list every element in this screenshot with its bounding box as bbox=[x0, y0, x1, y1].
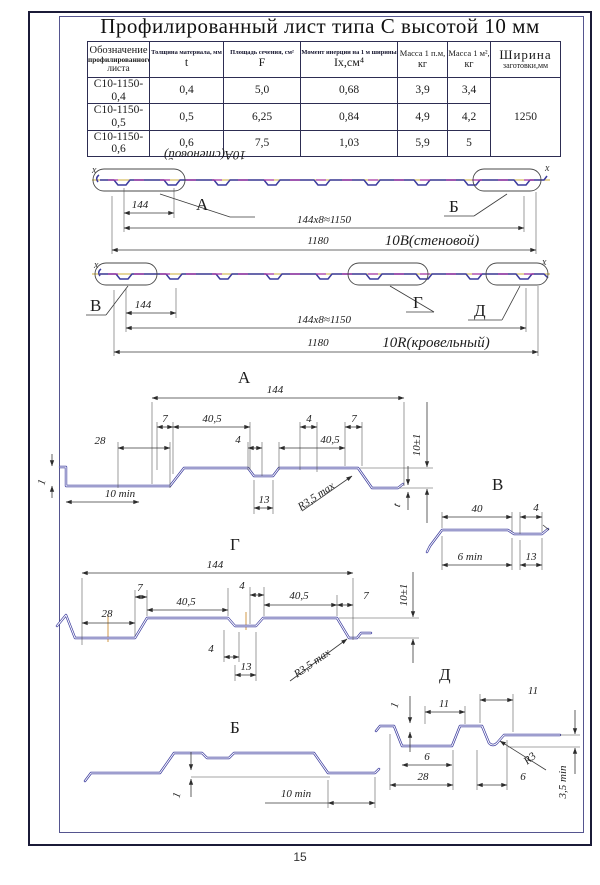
svg-text:3,5 min: 3,5 min bbox=[557, 765, 569, 800]
leader-d bbox=[502, 286, 520, 320]
cell-inertia: 0,68 bbox=[301, 78, 398, 104]
header-area: Площадь сечения, см² F bbox=[224, 42, 301, 78]
svg-text:7: 7 bbox=[363, 590, 369, 602]
table-row: С10-1150-0,4 0,4 5,0 0,68 3,9 3,4 1250 bbox=[88, 78, 561, 104]
svg-text:6: 6 bbox=[520, 771, 526, 783]
svg-text:7: 7 bbox=[351, 413, 357, 425]
svg-text:4: 4 bbox=[239, 580, 245, 592]
detail-b-label: Б bbox=[230, 718, 240, 737]
leader-g bbox=[390, 286, 434, 312]
header-mass-lm: Масса 1 п.м, кг bbox=[398, 42, 448, 78]
svg-text:40,5: 40,5 bbox=[202, 413, 222, 425]
svg-text:40: 40 bbox=[472, 503, 484, 515]
svg-text:4: 4 bbox=[208, 643, 214, 655]
svg-text:1180: 1180 bbox=[307, 337, 329, 349]
page-title: Профилированный лист типа С высотой 10 м… bbox=[62, 14, 578, 39]
cell-inertia: 0,84 bbox=[301, 104, 398, 130]
flipped-type-label: 10А(стеновой) bbox=[164, 148, 246, 163]
cell-designation: С10-1150-0,5 bbox=[88, 104, 150, 130]
svg-text:R3,5 max: R3,5 max bbox=[295, 480, 337, 514]
svg-text:4: 4 bbox=[235, 434, 241, 446]
cell-mass-lm: 3,9 bbox=[398, 78, 448, 104]
header-thickness: Толщина материала, мм t bbox=[150, 42, 224, 78]
svg-text:40,5: 40,5 bbox=[176, 596, 196, 608]
svg-text:40,5: 40,5 bbox=[289, 590, 309, 602]
svg-text:144: 144 bbox=[267, 384, 284, 396]
detail-d-drawing: Д 1 11 11 6 28 6 R3 bbox=[376, 665, 580, 800]
svg-text:13: 13 bbox=[241, 661, 253, 673]
type-label-roof: 10R(кровельный) bbox=[382, 335, 489, 351]
detail-d-profile bbox=[376, 726, 560, 746]
svg-text:28: 28 bbox=[418, 771, 430, 783]
detail-a-profile bbox=[60, 467, 403, 488]
svg-text:1: 1 bbox=[36, 478, 49, 486]
cell-thickness: 0,5 bbox=[150, 104, 224, 130]
svg-text:t: t bbox=[391, 501, 404, 508]
svg-text:R3,5 max: R3,5 max bbox=[291, 647, 333, 681]
detail-v-profile bbox=[427, 529, 548, 552]
svg-text:40,5: 40,5 bbox=[320, 434, 340, 446]
svg-text:10 min: 10 min bbox=[105, 488, 136, 500]
svg-text:144х8≈1150: 144х8≈1150 bbox=[297, 314, 352, 326]
svg-text:6: 6 bbox=[424, 751, 430, 763]
header-mass-m2: Масса 1 м², кг bbox=[448, 42, 491, 78]
cell-mass-lm: 4,9 bbox=[398, 104, 448, 130]
svg-text:R3: R3 bbox=[521, 750, 539, 768]
svg-text:7: 7 bbox=[137, 582, 143, 594]
svg-text:1: 1 bbox=[389, 701, 402, 709]
svg-text:11: 11 bbox=[439, 698, 449, 710]
svg-text:144: 144 bbox=[135, 299, 152, 311]
svg-text:4: 4 bbox=[533, 502, 539, 514]
detail-a-drawing: А 144 7 40,5 4 7 bbox=[36, 368, 433, 523]
cell-thickness: 0,4 bbox=[150, 78, 224, 104]
document-page: Профилированный лист типа С высотой 10 м… bbox=[0, 0, 600, 885]
svg-text:10 min: 10 min bbox=[281, 788, 312, 800]
detail-d-label: Д bbox=[439, 665, 451, 684]
table-row: С10-1150-0,5 0,5 6,25 0,84 4,9 4,2 bbox=[88, 104, 561, 130]
type-label-wall: 10В(стеновой) bbox=[385, 233, 480, 249]
detail-ref-v: В bbox=[90, 296, 101, 315]
leader-a bbox=[160, 194, 230, 217]
leader-b bbox=[474, 194, 507, 216]
svg-text:4: 4 bbox=[306, 413, 312, 425]
header-blank-width: Ширина заготовки,мм bbox=[491, 42, 561, 78]
svg-text:1180: 1180 bbox=[307, 235, 329, 247]
svg-text:13: 13 bbox=[526, 551, 538, 563]
axis-mark-left: х bbox=[91, 165, 97, 176]
table-header-row: Обозначение профилированного листа Толщи… bbox=[88, 42, 561, 78]
svg-text:10±1: 10±1 bbox=[398, 584, 410, 607]
svg-text:13: 13 bbox=[259, 494, 271, 506]
detail-v-label: В bbox=[492, 475, 503, 494]
detail-ref-d: Д bbox=[474, 301, 486, 320]
detail-ref-g: Г bbox=[413, 293, 423, 312]
page-number: 15 bbox=[0, 850, 600, 864]
header-designation: Обозначение профилированного листа bbox=[88, 42, 150, 78]
cell-mass-m2: 4,2 bbox=[448, 104, 491, 130]
svg-text:28: 28 bbox=[95, 435, 107, 447]
svg-text:144х8≈1150: 144х8≈1150 bbox=[297, 214, 352, 226]
roof-profile-drawing: х х В Г Д 144 144х8≈1150 bbox=[86, 257, 550, 356]
detail-a-label: А bbox=[238, 368, 251, 387]
cell-area: 6,25 bbox=[224, 104, 301, 130]
detail-g-drawing: Г 144 7 40,5 4 40,5 7 bbox=[57, 535, 419, 681]
axis-mark-right: х bbox=[544, 163, 550, 174]
svg-text:28: 28 bbox=[102, 608, 114, 620]
cell-area: 5,0 bbox=[224, 78, 301, 104]
detail-v-drawing: В 40 4 6 min 13 bbox=[427, 475, 549, 570]
svg-text:10±1: 10±1 bbox=[411, 434, 423, 457]
cell-designation: С10-1150-0,4 bbox=[88, 78, 150, 104]
detail-ref-b: Б bbox=[449, 197, 459, 216]
axis-mark-right: х bbox=[541, 257, 547, 268]
cell-mass-m2: 3,4 bbox=[448, 78, 491, 104]
svg-text:7: 7 bbox=[162, 413, 168, 425]
svg-text:11: 11 bbox=[528, 685, 538, 697]
svg-text:6 min: 6 min bbox=[458, 551, 483, 563]
svg-text:144: 144 bbox=[132, 199, 149, 211]
wall-profile-drawing: 10А(стеновой) х х А Б 144 144х8≈1150 bbox=[91, 148, 550, 254]
leader-v bbox=[106, 286, 128, 315]
detail-ref-a: А bbox=[196, 195, 209, 214]
svg-text:144: 144 bbox=[207, 559, 224, 571]
svg-text:1: 1 bbox=[171, 791, 184, 799]
header-inertia: Момент инерции на 1 м ширины Iх,см⁴ bbox=[301, 42, 398, 78]
detail-g-label: Г bbox=[230, 535, 240, 554]
detail-b-drawing: Б 1 10 min bbox=[85, 718, 379, 808]
technical-drawing: 10А(стеновой) х х А Б 144 144х8≈1150 bbox=[0, 140, 600, 840]
